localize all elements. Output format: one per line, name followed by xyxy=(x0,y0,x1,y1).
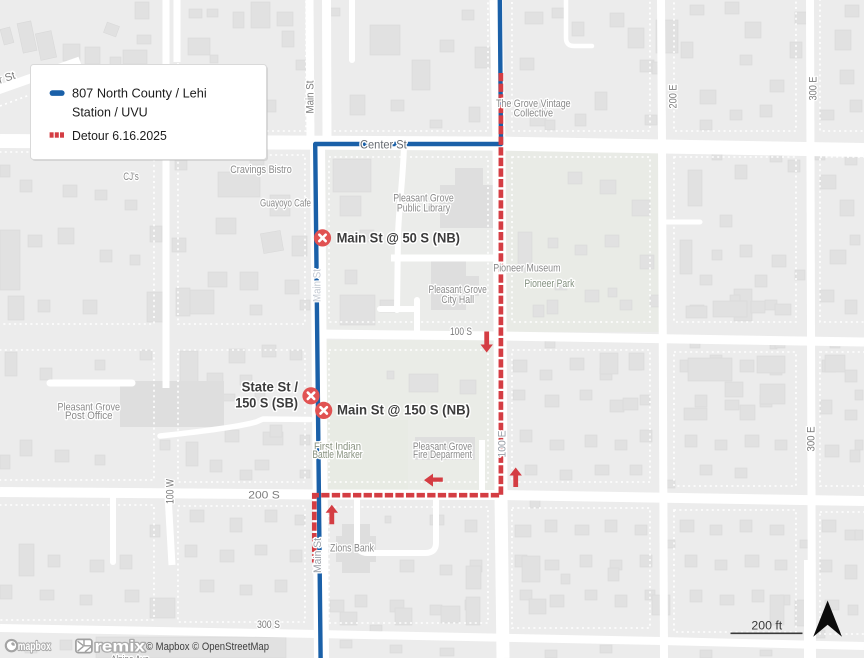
svg-text:Public Library: Public Library xyxy=(397,202,451,214)
svg-text:Pioneer Museum: Pioneer Museum xyxy=(493,262,560,274)
svg-text:807 North County / Lehi: 807 North County / Lehi xyxy=(72,85,207,100)
svg-text:Fire Deparment: Fire Deparment xyxy=(413,449,472,461)
svg-text:300 E: 300 E xyxy=(808,77,820,101)
svg-text:Cravings Bistro: Cravings Bistro xyxy=(230,164,292,176)
svg-text:Main St @ 50 S (NB): Main St @ 50 S (NB) xyxy=(337,230,460,246)
svg-text:Pioneer Park: Pioneer Park xyxy=(524,278,574,290)
svg-text:Zions Bank: Zions Bank xyxy=(330,542,374,554)
svg-text:300 E: 300 E xyxy=(806,427,818,452)
svg-text:Collective: Collective xyxy=(514,107,553,119)
svg-text:200 ft: 200 ft xyxy=(751,621,783,633)
svg-text:Main St: Main St xyxy=(312,538,324,573)
svg-text:100 W: 100 W xyxy=(165,479,177,504)
svg-text:remix: remix xyxy=(95,638,146,655)
svg-text:100 E: 100 E xyxy=(497,431,509,458)
svg-text:Battle Marker: Battle Marker xyxy=(312,449,362,461)
svg-text:mapbox: mapbox xyxy=(18,641,51,653)
svg-text:300 S: 300 S xyxy=(257,619,280,631)
svg-text:Post Office: Post Office xyxy=(65,410,113,422)
svg-text:150 S (SB): 150 S (SB) xyxy=(235,394,298,410)
svg-text:City Hall: City Hall xyxy=(441,294,474,306)
svg-text:State St /: State St / xyxy=(242,378,299,394)
svg-text:100 S: 100 S xyxy=(450,326,472,338)
svg-text:CJ's: CJ's xyxy=(123,171,139,183)
svg-text:Center St: Center St xyxy=(360,139,407,151)
svg-text:Main St: Main St xyxy=(312,269,324,302)
svg-text:Guayoyo Cafe: Guayoyo Cafe xyxy=(260,197,311,209)
svg-text:© Mapbox © OpenStreetMap: © Mapbox © OpenStreetMap xyxy=(146,641,269,653)
svg-text:200 E: 200 E xyxy=(668,85,680,109)
svg-text:Station / UVU: Station / UVU xyxy=(72,104,148,119)
svg-text:Main St @ 150 S (NB): Main St @ 150 S (NB) xyxy=(337,402,470,418)
svg-text:Detour 6.16.2025: Detour 6.16.2025 xyxy=(72,128,167,143)
svg-text:Main St: Main St xyxy=(305,81,317,114)
svg-text:200 S: 200 S xyxy=(248,489,280,501)
